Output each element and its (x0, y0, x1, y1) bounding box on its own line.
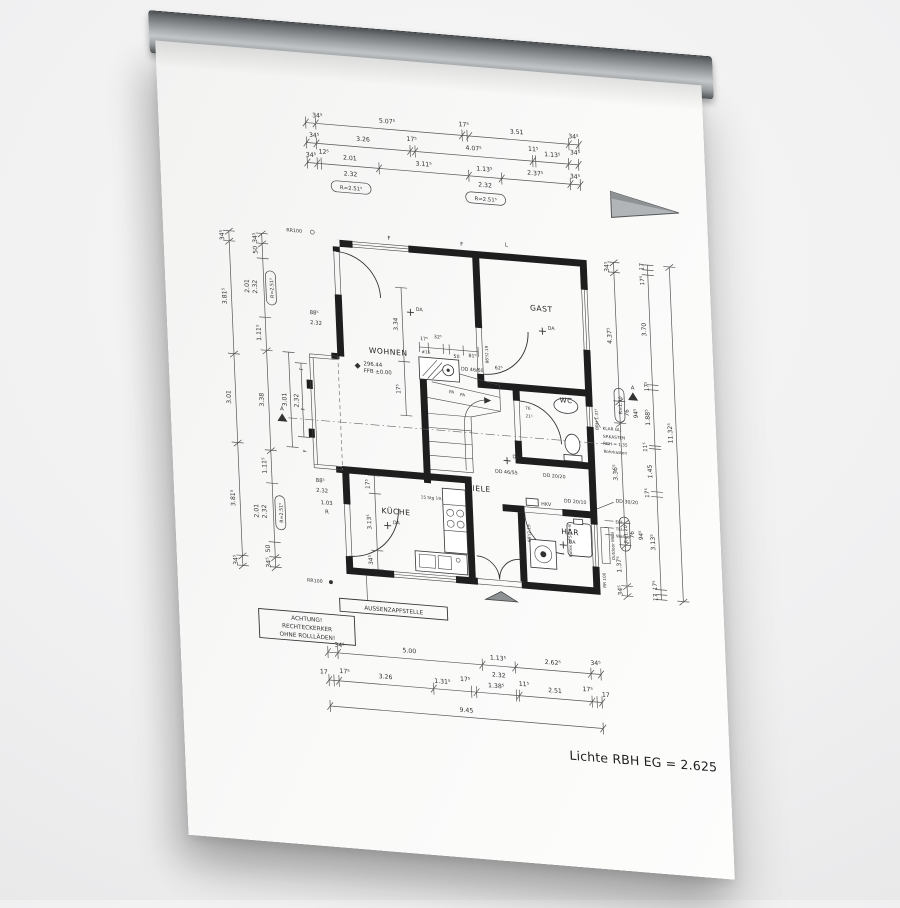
da-marker: DA (393, 520, 401, 527)
da-marker: DA (548, 326, 556, 333)
dim-chain-bottom: 34⁵ 5.00 1.13⁵ 2.32 2.62⁵ 34⁵ 17 17⁵ 3.2… (318, 637, 611, 735)
dim-label: 88⁵ (310, 309, 319, 317)
window-marker: F (460, 242, 463, 248)
da-marker: DA (416, 307, 424, 314)
dim-label: 2.37⁵ (527, 170, 544, 178)
dim-label: 1.45 (647, 464, 655, 478)
da-marker: DA (512, 454, 520, 461)
entrance-arrow-icon (485, 590, 517, 602)
window-marker: F (299, 367, 305, 370)
dim-label: R=2.51⁵ (474, 195, 497, 204)
dim-label: 17⁵ (420, 336, 428, 343)
dim-label: 17⁵ (339, 668, 350, 676)
dim-label: 12⁵ (319, 148, 330, 156)
dim-label: 1.13⁵ (490, 654, 507, 662)
dim-label: 2.51 (548, 687, 562, 695)
dim-label: 34⁵ (306, 151, 317, 159)
direction-arrow-icon (610, 191, 679, 223)
level-marker-icon (354, 363, 360, 369)
window-marker: F (301, 407, 307, 410)
duct-label: DD 30/20 (615, 498, 638, 506)
dim-chain-top: 34⁵ 5.07⁵ 17⁵ 3.51 34⁵ 34⁵ 3.26 17⁵ 4.07… (302, 108, 584, 212)
door-size-label: 88⁵/2.19 (484, 345, 490, 363)
dim-chain-left: 34⁵ 3.81⁵ 3.01 3.81⁵ 34⁵ 34⁵ 50 2.01 2.3… (219, 227, 336, 577)
dim-label: 2.32 (316, 488, 328, 495)
dim-label: 11⁵ (519, 681, 530, 689)
dim-label: 2.01 (343, 154, 357, 162)
duct-label: DD 46/55 (495, 469, 518, 477)
dim-label: 34⁵ (309, 132, 320, 140)
dim-label: 3.13⁵ (366, 514, 374, 530)
dim-label: 17⁵ (643, 381, 650, 392)
room-label-diele: DIELE (466, 483, 491, 494)
section-label: A (631, 385, 635, 391)
stair-label: PA (449, 389, 454, 394)
dim-label: 3.01 (281, 392, 289, 406)
dim-label: 32⁵ (434, 334, 442, 341)
dim-label: 3.38 (258, 393, 266, 407)
room-label-kueche: KÜCHE (381, 506, 410, 517)
dim-label: 1.11⁵ (256, 324, 264, 341)
floor-plan-paper: 34⁵ 5.07⁵ 17⁵ 3.51 34⁵ 34⁵ 3.26 17⁵ 4.07… (155, 40, 735, 879)
dim-label: 4.07⁵ (465, 145, 482, 153)
dim-label: 34⁵ (570, 149, 581, 157)
lintel-marker: L (505, 242, 508, 248)
dim-label: 1.38⁵ (488, 682, 505, 690)
dim-label: 2.32 (261, 504, 269, 518)
dim-label: 34⁵ (312, 112, 323, 120)
dim-label: 34⁵ (603, 261, 610, 272)
dim-label: 1.13⁵ (476, 165, 493, 173)
duct-label: DD 20/20 (543, 473, 566, 481)
hkv-box (526, 498, 538, 506)
dim-label: 1.13⁵ (544, 151, 561, 159)
caption-lichte-rbh: Lichte RBH EG = 2.625 (569, 748, 717, 775)
dim-label: 17⁵ (364, 478, 371, 489)
note-label: RR100 (286, 227, 302, 234)
dim-label: 34⁵ (368, 554, 375, 565)
outdoor-box (601, 527, 610, 564)
section-marker-icon (277, 413, 287, 422)
note-label: SP.KASTEN (603, 434, 626, 441)
note-label: RR 100 (602, 572, 608, 588)
dim-label: 1.37⁵ (616, 556, 624, 573)
duct-label: DD 20/10 (564, 498, 587, 506)
dim-label: 3.01 (226, 390, 234, 404)
dim-label: 34⁵ (568, 133, 579, 141)
dim-chain-right: 34⁵ 4.37⁵ R=1.30 76 94⁵ 3.36⁵ R=1.20 76 … (603, 259, 689, 607)
dim-label: 2.32 (293, 393, 301, 407)
dim-label: 17⁵ (639, 275, 646, 286)
dim-label: R=2.51⁵ (269, 278, 276, 298)
dim-label: 34⁵ (590, 660, 601, 668)
dim-label: 94⁵ (632, 408, 639, 419)
dim-label: 17 (320, 668, 328, 676)
dim-label: R (325, 509, 329, 515)
dim-label: 5.07⁵ (379, 118, 396, 126)
kitchen-counter (442, 488, 468, 554)
dim-label: 50 (453, 354, 459, 360)
dim-label: 3.11⁵ (415, 160, 432, 168)
dim-label: 34⁵ (570, 173, 581, 181)
toilet (565, 434, 581, 455)
utility-label: Wasser (616, 533, 632, 539)
window-marker: F (303, 449, 309, 452)
dim-label: 50 (252, 246, 259, 255)
dim-label: 3.26 (356, 136, 370, 144)
note-label: KLAR GL. (602, 426, 621, 433)
dim-label: 3.70 (641, 322, 649, 336)
door-size-label: 88⁵/2.19 (526, 524, 532, 542)
stair-label: PA (460, 392, 465, 397)
dim-label: R=1.30 (618, 396, 625, 414)
dim-label: 1.88⁵ (644, 409, 652, 426)
dim-label: 9.45 (459, 707, 473, 715)
dim-label: 34⁵ (265, 557, 272, 568)
dim-label: 17 (653, 593, 659, 601)
dim-label: 81⁵ (468, 353, 476, 360)
dim-label: 76 (525, 405, 531, 410)
dim-label: 88⁵ (316, 477, 325, 485)
dim-label: 62⁵ (495, 365, 503, 372)
dim-label: 11⁵ (642, 441, 649, 452)
dim-label: 17⁵ (644, 487, 651, 498)
dim-label: 34⁵ (617, 585, 624, 596)
stair-label: #16 (421, 349, 430, 355)
dim-label: 76 (625, 409, 631, 417)
dim-label: 3.51 (510, 128, 524, 136)
dim-label: 2.01 (253, 504, 261, 518)
dim-label: 1.03 (321, 500, 333, 507)
tap-label: AUSSENZAPFSTELLE (364, 606, 423, 617)
dim-label: 2.01 (244, 279, 252, 293)
dim-label: 4.37⁵ (606, 327, 614, 344)
utility-label: ELT (615, 519, 623, 525)
room-label-gast: GAST (530, 303, 553, 314)
dim-label: 2.32 (310, 320, 322, 327)
duct-label: DD 46/60 (461, 366, 484, 374)
dim-label: 3.26 (379, 673, 393, 681)
note-label: RBH = 1.35 (603, 441, 628, 448)
dim-label: 2.32 (344, 170, 358, 178)
dim-label: 17 (639, 262, 645, 270)
dim-label: 17⁵ (582, 686, 593, 694)
callout-boxes: AUSSENZAPFSTELLE ACHTUNG! RECHTECKERKER … (257, 567, 449, 654)
dim-label: 3.81⁵ (221, 287, 229, 304)
dim-label: 17⁵ (652, 580, 659, 591)
dim-label: 3.13⁵ (650, 534, 658, 551)
room-label-wc: WC (560, 396, 573, 405)
dim-label: 11⁵ (528, 146, 539, 154)
dim-label: 17⁵ (460, 676, 471, 684)
dim-label: 1.31⁵ (434, 678, 451, 686)
dim-label: 34⁵ (252, 232, 259, 243)
dim-label: 34⁵ (232, 554, 239, 565)
dim-label: 2.32 (478, 182, 492, 190)
dim-label: 3.34 (393, 317, 400, 331)
note-label: Rohrkasten (603, 449, 627, 456)
dim-label: 5.00 (402, 647, 416, 655)
window-marker: F (387, 236, 390, 242)
dim-label: 17⁵ (395, 383, 402, 394)
dim-label: 17⁵ (406, 136, 417, 144)
dim-label: 11.32⁵ (667, 422, 675, 443)
note-label: BRH 1.37⁵ (594, 408, 600, 430)
walkline-arrow-icon (484, 397, 491, 404)
warning-line: ACHTUNG! (291, 616, 322, 625)
dim-label: 34⁵ (219, 229, 226, 240)
section-label: A (280, 406, 284, 412)
dim-label: 2.32 (492, 672, 506, 680)
dim-label: 17 (602, 692, 610, 700)
dim-label: 3.36⁵ (612, 464, 620, 481)
dim-label: 21⁵ (525, 413, 533, 419)
dim-label: 17⁵ (458, 121, 469, 129)
dim-label: 50 (265, 544, 272, 553)
hkv-label: HKV (541, 501, 552, 508)
utility-label: TEL (615, 526, 624, 532)
dim-label: 1.11⁵ (261, 457, 269, 474)
dim-label: R=2.51⁵ (340, 184, 363, 193)
dim-label: R=2.51⁵ (278, 503, 285, 523)
dim-label: 34⁵ (334, 642, 345, 650)
floor-plan-drawing: 34⁵ 5.07⁵ 17⁵ 3.51 34⁵ 34⁵ 3.26 17⁵ 4.07… (155, 40, 735, 879)
note-label: RR100 (307, 578, 323, 585)
clip-rail-and-paper: 34⁵ 5.07⁵ 17⁵ 3.51 34⁵ 34⁵ 3.26 17⁵ 4.07… (148, 10, 748, 908)
room-label-wohnen: WOHNEN (369, 346, 408, 358)
level-label: FFB ±0.00 (364, 368, 393, 376)
section-marker-icon (628, 392, 638, 401)
dim-label: 3.81⁵ (230, 489, 238, 506)
dim-label: 2.32 (252, 279, 260, 293)
dim-label: 94⁵ (638, 530, 645, 541)
dim-label: 2.62⁵ (545, 659, 562, 667)
